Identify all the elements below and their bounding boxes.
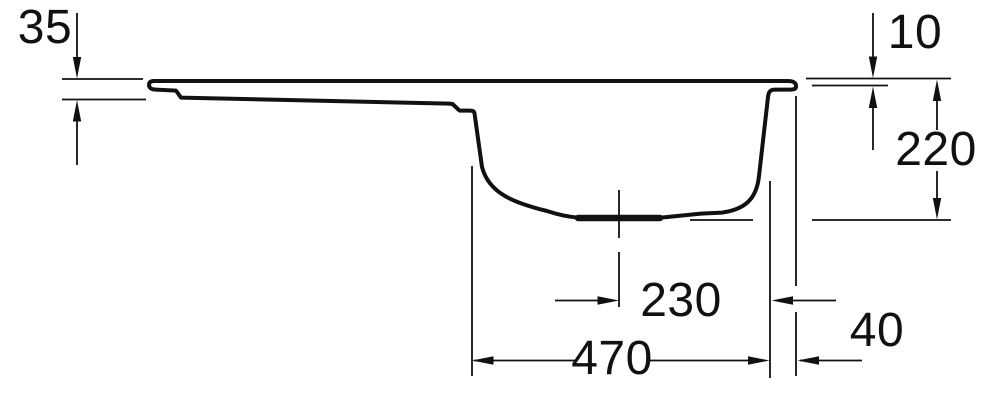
arrow-470-left bbox=[472, 356, 494, 364]
arrow-10-up bbox=[869, 87, 877, 109]
arrow-220-down bbox=[933, 198, 941, 220]
dim-label-right-rim-width: 40 bbox=[850, 307, 904, 355]
arrow-35-down bbox=[73, 57, 81, 79]
dim-label-bowl-depth: 220 bbox=[895, 126, 977, 174]
arrow-220-up bbox=[933, 80, 941, 102]
arrow-230-left bbox=[772, 296, 794, 304]
sink-dimension-diagram: 35 10 220 230 470 40 bbox=[0, 0, 992, 402]
arrow-10-down bbox=[869, 57, 877, 79]
arrow-230-right bbox=[598, 296, 620, 304]
dim-label-rim-height: 10 bbox=[888, 9, 942, 57]
dim-label-left-edge-height: 35 bbox=[18, 4, 72, 52]
arrow-470-right bbox=[748, 356, 770, 364]
arrowheads bbox=[73, 57, 941, 365]
drawing-canvas bbox=[0, 0, 992, 402]
dim-label-bowl-width: 470 bbox=[571, 335, 653, 383]
arrow-35-up bbox=[73, 100, 81, 122]
dim-label-drain-offset: 230 bbox=[640, 277, 722, 325]
arrow-40-left bbox=[798, 356, 820, 364]
